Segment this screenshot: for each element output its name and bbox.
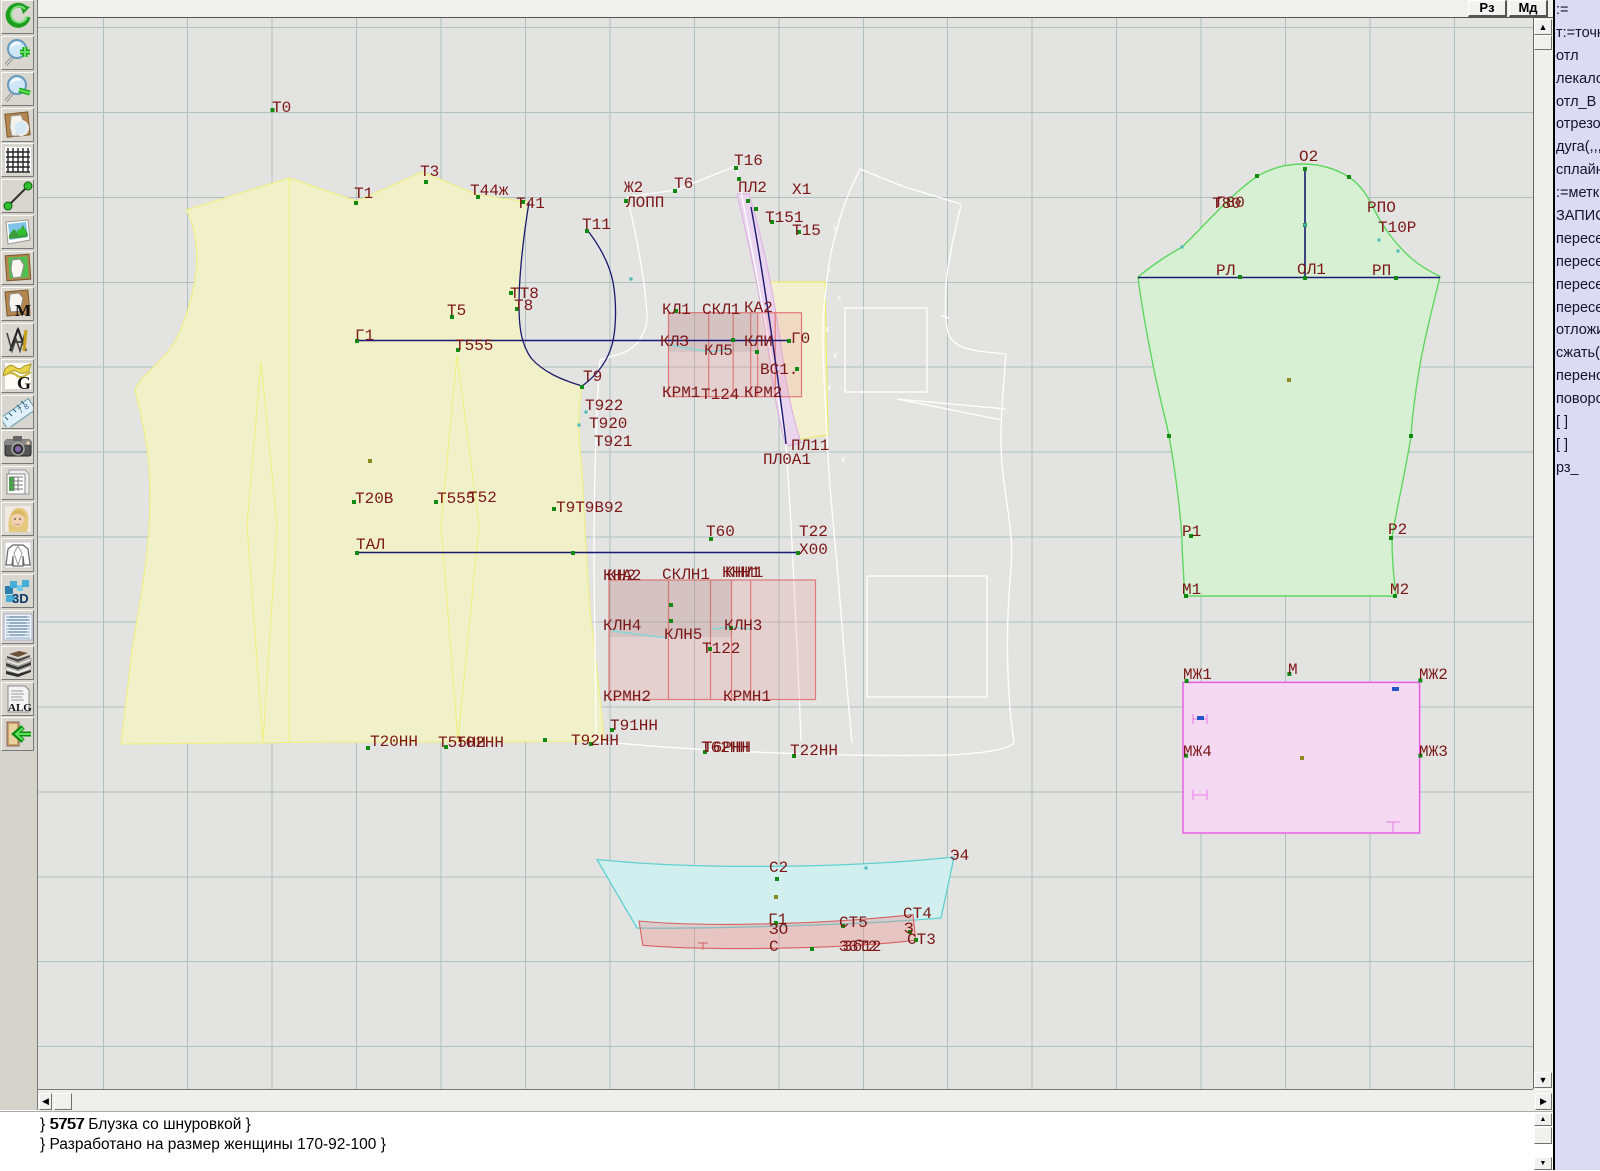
svg-text:КЛ1: КЛ1 (662, 301, 691, 319)
svg-text:Х1: Х1 (792, 181, 811, 199)
svg-text:Т44ж: Т44ж (470, 182, 509, 200)
svg-text:КРМН1: КРМН1 (723, 688, 771, 706)
svg-text:М2: М2 (1390, 581, 1409, 599)
svg-text:ТАЛ: ТАЛ (356, 536, 385, 554)
svg-text:Т8: Т8 (514, 297, 533, 315)
svg-text:КЛЗ: КЛЗ (660, 333, 689, 351)
svg-text:СТ5: СТ5 (839, 914, 868, 932)
svg-text:x: x (841, 454, 846, 464)
svg-text:КРМ1: КРМ1 (662, 384, 700, 402)
svg-text:Т921: Т921 (594, 433, 632, 451)
svg-text:Р1: Р1 (1182, 523, 1201, 541)
svg-text:Зб12: Зб12 (843, 938, 881, 956)
svg-text:МЖ3: МЖ3 (1419, 743, 1448, 761)
svg-text:М: М (1288, 661, 1298, 679)
svg-text:ЛОПП: ЛОПП (625, 194, 664, 212)
svg-text:Т122: Т122 (702, 640, 740, 658)
svg-text:КЛН3: КЛН3 (724, 617, 762, 635)
svg-text:ПЛ0А1: ПЛ0А1 (763, 451, 811, 469)
svg-text:ALG: ALG (8, 702, 32, 714)
svg-text:МЖ2: МЖ2 (1419, 666, 1448, 684)
svg-text:Т10Р: Т10Р (1378, 219, 1416, 237)
svg-text:СКЛН1: СКЛН1 (662, 566, 710, 584)
svg-text:С2: С2 (769, 859, 788, 877)
svg-text:КЛИ: КЛИ (744, 333, 773, 351)
svg-text:Т60: Т60 (706, 523, 735, 541)
svg-text:РПО: РПО (1367, 199, 1396, 217)
svg-text:Т6РНН: Т6РНН (703, 739, 751, 757)
svg-text:Р2: Р2 (1388, 521, 1407, 539)
svg-text:Т3: Т3 (420, 163, 439, 181)
svg-text:Т11: Т11 (582, 216, 611, 234)
svg-text:РП: РП (1372, 262, 1391, 280)
svg-text:Т52: Т52 (468, 489, 497, 507)
svg-text:Т22НН: Т22НН (790, 742, 838, 760)
svg-text:G: G (17, 373, 31, 391)
svg-text:КРМН2: КРМН2 (603, 688, 651, 706)
svg-text:Т20В: Т20В (355, 490, 393, 508)
svg-text:Э4: Э4 (950, 847, 969, 865)
svg-text:x: x (827, 264, 832, 274)
svg-text:КЛН5: КЛН5 (664, 626, 702, 644)
svg-text:Т1: Т1 (354, 185, 373, 203)
svg-text:M: M (15, 301, 31, 319)
svg-text:С: С (769, 938, 779, 956)
svg-text:x: x (833, 350, 838, 360)
svg-text:Т20НН: Т20НН (370, 733, 418, 751)
svg-text:РЛ: РЛ (1216, 262, 1235, 280)
svg-text:Т6: Т6 (674, 175, 693, 193)
svg-text:Т124: Т124 (701, 386, 739, 404)
svg-text:Т22: Т22 (799, 523, 828, 541)
svg-text:КН2: КН2 (607, 567, 636, 585)
svg-text:x: x (833, 223, 838, 233)
svg-text:Т922: Т922 (585, 397, 623, 415)
svg-text:Т92НН: Т92НН (571, 732, 619, 750)
svg-text:Г1: Г1 (355, 327, 374, 345)
svg-text:МЖ1: МЖ1 (1183, 666, 1212, 684)
svg-text:ОЛ1: ОЛ1 (1297, 261, 1326, 279)
svg-text:Г0: Г0 (791, 330, 810, 348)
svg-text:СКЛ1: СКЛ1 (702, 301, 740, 319)
svg-text:Т555: Т555 (455, 337, 493, 355)
svg-text:Т41: Т41 (516, 195, 545, 213)
svg-text:Т02НН: Т02НН (456, 734, 504, 752)
svg-text:СТ3: СТ3 (907, 931, 936, 949)
svg-text:КА2: КА2 (744, 299, 773, 317)
svg-text:Т920: Т920 (589, 415, 627, 433)
svg-text:Т16: Т16 (734, 152, 763, 170)
svg-text:Х00: Х00 (799, 541, 828, 559)
svg-text:ПЛ2: ПЛ2 (738, 179, 767, 197)
svg-text:Т0: Т0 (272, 99, 291, 117)
svg-text:x: x (827, 382, 832, 392)
svg-text:ЗО: ЗО (769, 921, 788, 939)
svg-text:Т9: Т9 (583, 368, 602, 386)
svg-text:М1: М1 (1182, 581, 1201, 599)
svg-text:КРМ2: КРМ2 (744, 384, 782, 402)
svg-text:КЛ5: КЛ5 (704, 342, 733, 360)
svg-text:О2: О2 (1299, 148, 1318, 166)
svg-text:КЛН4: КЛН4 (603, 617, 641, 635)
svg-text:x: x (837, 292, 842, 302)
svg-text:3D: 3D (12, 591, 29, 606)
svg-text:Т5: Т5 (447, 302, 466, 320)
svg-text:x: x (825, 324, 830, 334)
svg-text:Т15: Т15 (792, 222, 821, 240)
svg-text:Т9Т9В92: Т9Т9В92 (556, 499, 623, 517)
svg-text:ВС1.: ВС1. (760, 361, 798, 379)
svg-text:МЖ4: МЖ4 (1183, 743, 1212, 761)
svg-text:Г80: Г80 (1216, 194, 1245, 212)
svg-text:КНИ1: КНИ1 (725, 564, 763, 582)
